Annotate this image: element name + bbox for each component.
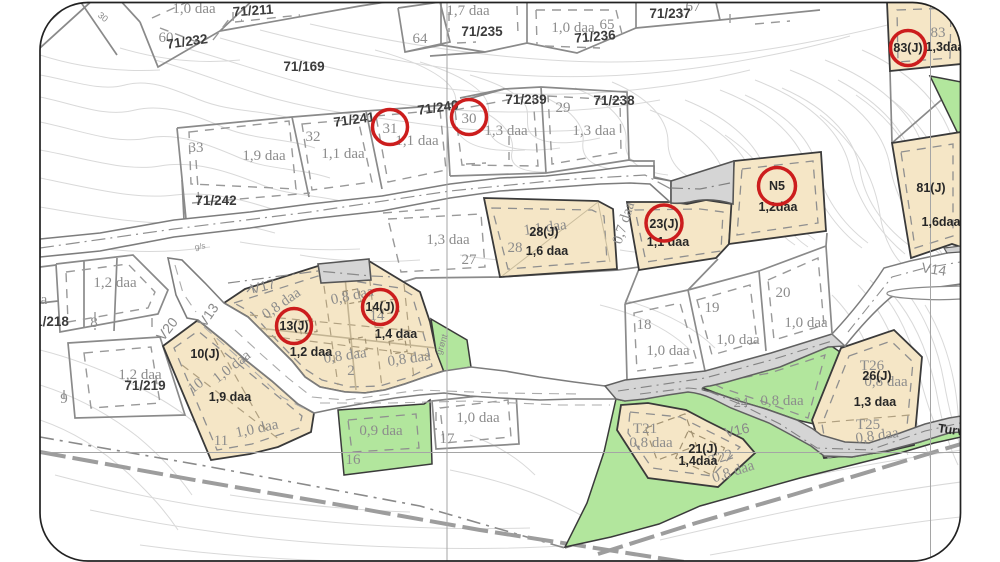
svg-text:81(J): 81(J): [916, 181, 945, 195]
svg-text:71/211: 71/211: [232, 2, 274, 20]
svg-text:1,0 daa: 1,0 daa: [172, 1, 216, 17]
svg-text:71/238: 71/238: [593, 93, 635, 108]
svg-text:2: 2: [347, 363, 355, 379]
svg-text:1,1 daa: 1,1 daa: [321, 146, 365, 162]
svg-text:1,0 daa: 1,0 daa: [456, 410, 500, 426]
svg-text:1,9 daa: 1,9 daa: [242, 148, 286, 164]
svg-text:28: 28: [508, 240, 523, 256]
svg-text:10(J): 10(J): [190, 347, 219, 361]
svg-text:71/237: 71/237: [649, 6, 690, 21]
svg-text:1,2 daa: 1,2 daa: [93, 275, 137, 291]
svg-text:83: 83: [931, 25, 946, 41]
svg-text:1,6 daa: 1,6 daa: [526, 244, 569, 258]
svg-text:28(J): 28(J): [529, 225, 558, 239]
svg-text:17: 17: [440, 431, 456, 447]
svg-text:71/169: 71/169: [283, 59, 324, 74]
svg-text:30: 30: [462, 111, 477, 127]
svg-text:13(J): 13(J): [279, 319, 308, 333]
svg-text:0,8 daa: 0,8 daa: [760, 393, 804, 409]
svg-text:1,3 daa: 1,3 daa: [484, 123, 528, 139]
svg-text:1,6daa: 1,6daa: [922, 215, 962, 229]
svg-text:N5: N5: [769, 179, 785, 193]
svg-text:1,4daa: 1,4daa: [679, 454, 719, 468]
svg-text:14(J): 14(J): [365, 300, 394, 314]
svg-text:33: 33: [189, 140, 204, 156]
svg-text:1,4 daa: 1,4 daa: [375, 327, 418, 341]
svg-text:1,7 daa: 1,7 daa: [446, 3, 490, 19]
svg-text:9: 9: [60, 391, 68, 407]
svg-text:1,9 daa: 1,9 daa: [209, 390, 252, 404]
svg-text:1,0 daa: 1,0 daa: [784, 315, 828, 331]
svg-text:1,2 daa: 1,2 daa: [290, 345, 333, 359]
svg-text:27: 27: [462, 252, 478, 268]
svg-text:1,3 daa: 1,3 daa: [854, 395, 897, 409]
svg-text:1,3 daa: 1,3 daa: [572, 123, 616, 139]
svg-text:8: 8: [90, 315, 98, 331]
svg-text:g/s: g/s: [194, 241, 206, 251]
svg-text:83(J): 83(J): [893, 41, 922, 55]
svg-text:1,0 daa: 1,0 daa: [716, 332, 760, 348]
svg-text:11: 11: [214, 433, 228, 449]
svg-text:24: 24: [734, 395, 750, 411]
svg-text:19: 19: [705, 300, 720, 316]
svg-text:0,8 daa: 0,8 daa: [629, 435, 673, 451]
svg-text:18: 18: [637, 317, 652, 333]
svg-text:71/219: 71/219: [124, 378, 165, 393]
svg-text:16: 16: [346, 452, 362, 468]
svg-text:1,2daa: 1,2daa: [759, 200, 799, 214]
svg-text:71/239: 71/239: [505, 92, 546, 107]
svg-text:71/242: 71/242: [195, 193, 236, 208]
svg-text:23(J): 23(J): [649, 217, 678, 231]
svg-text:71/235: 71/235: [461, 24, 503, 39]
svg-text:64: 64: [413, 31, 429, 47]
svg-text:20: 20: [776, 285, 791, 301]
svg-text:a: a: [41, 292, 48, 308]
svg-text:29: 29: [556, 100, 571, 116]
svg-text:32: 32: [306, 129, 321, 145]
svg-text:26(J): 26(J): [862, 369, 891, 383]
svg-text:1,3 daa: 1,3 daa: [426, 232, 470, 248]
svg-text:0,9 daa: 0,9 daa: [359, 423, 403, 439]
svg-text:1,0 daa: 1,0 daa: [646, 343, 690, 359]
